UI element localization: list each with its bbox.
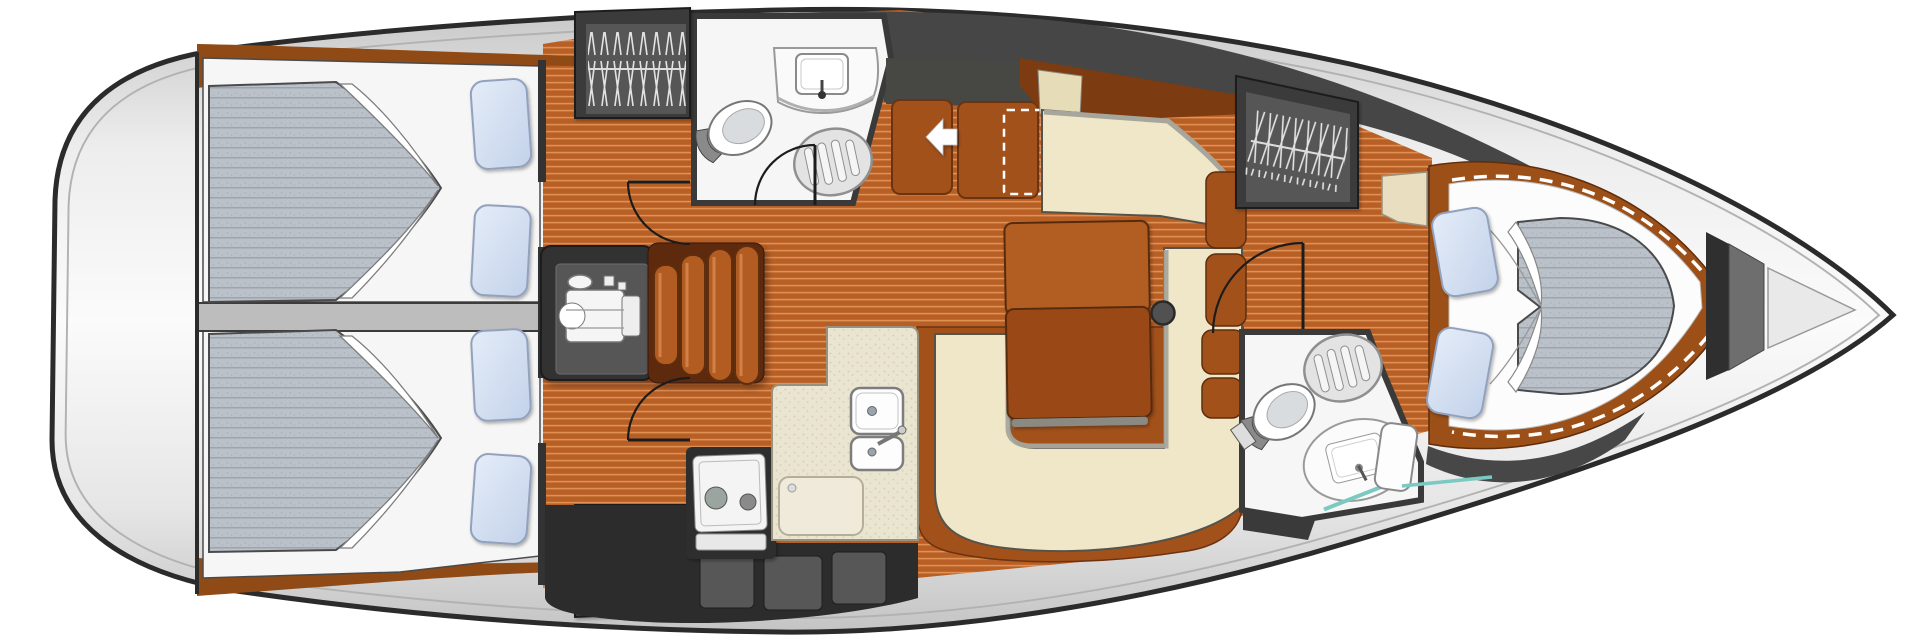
pillow: [470, 78, 532, 170]
pillow: [470, 453, 532, 545]
vanity-top: [1382, 172, 1427, 226]
aft-head: [688, 16, 891, 205]
settee-cushion: [1206, 254, 1246, 326]
bow-step: [1729, 244, 1764, 370]
engine-compartment: [541, 246, 653, 380]
hanging-locker-aft-top: [575, 8, 690, 118]
bow-bulkhead: [1706, 232, 1729, 380]
sailboat-floor-plan: [0, 0, 1920, 640]
companionway-seat: [958, 102, 1038, 198]
burner: [740, 494, 756, 510]
mast-post: [1152, 302, 1175, 325]
cabin-seat: [1374, 422, 1419, 492]
settee-cushion: [1202, 378, 1242, 418]
floor-plan-canvas: [0, 0, 1920, 640]
aft-cabin-divider-bulkhead: [197, 303, 545, 331]
pillow: [471, 329, 532, 422]
aft-cabins: [197, 44, 576, 596]
sink-icon: [851, 437, 903, 470]
saloon-table: [1004, 221, 1152, 427]
pillow: [471, 205, 532, 298]
stove-icon: [686, 447, 776, 559]
companionway-steps: [648, 243, 764, 384]
settee-cushion: [1202, 330, 1244, 374]
burner: [705, 487, 727, 509]
